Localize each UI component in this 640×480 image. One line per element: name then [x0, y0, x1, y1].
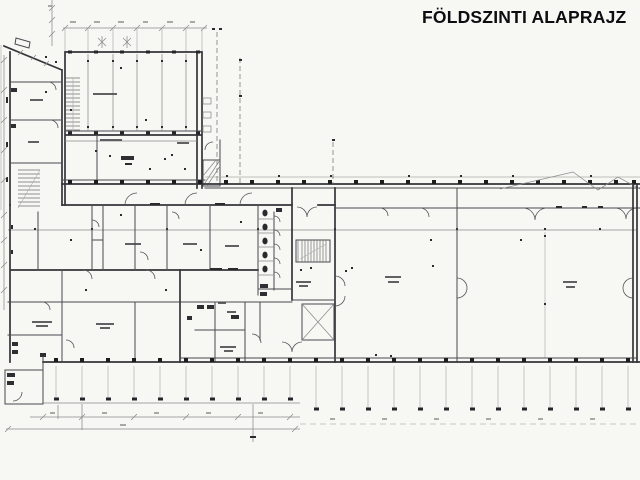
left-wing [4, 38, 62, 208]
floor-plan-drawing [0, 0, 640, 480]
south-west-rooms [8, 270, 292, 362]
stair-core [292, 188, 345, 362]
north-strip [62, 32, 640, 220]
entrance-ramp [203, 140, 220, 186]
dimension-lines-bottom [5, 404, 595, 442]
storage-room-b [544, 184, 637, 362]
elevator-shaft [302, 304, 334, 340]
scanned-floor-plan-page: FÖLDSZINTI ALAPRAJZ [0, 0, 640, 480]
annotation-dots [45, 68, 592, 356]
south-wall [43, 358, 640, 362]
band-below-hall [62, 135, 205, 180]
dimension-lines-top [48, 0, 222, 52]
service-rooms [187, 302, 302, 362]
main-hall [65, 52, 211, 205]
colonnade [5, 357, 638, 424]
room-row-center [10, 205, 258, 362]
section-line [8, 229, 636, 230]
corridor [62, 193, 335, 205]
dimension-lines-left [1, 55, 7, 310]
storage-room-a [345, 188, 467, 362]
